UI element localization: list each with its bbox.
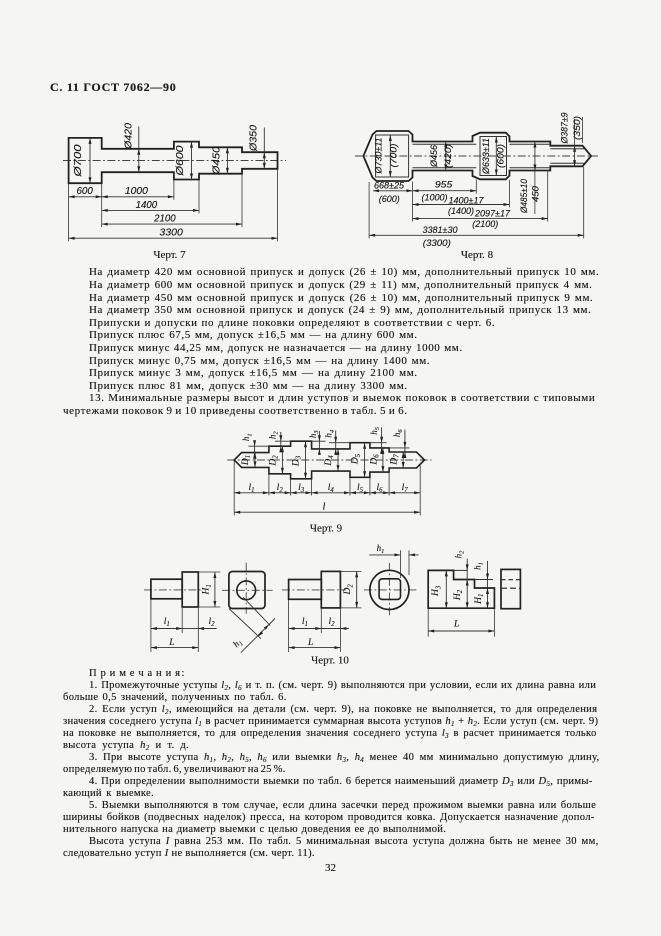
svg-text:3300: 3300 bbox=[159, 228, 183, 239]
svg-text:l2: l2 bbox=[328, 617, 335, 628]
svg-text:Ø350: Ø350 bbox=[249, 125, 260, 153]
svg-text:h5: h5 bbox=[369, 426, 381, 435]
svg-text:D5: D5 bbox=[351, 453, 362, 465]
svg-text:Ø387±9: Ø387±9 bbox=[560, 113, 570, 145]
svg-text:Черт. 7: Черт. 7 bbox=[153, 249, 186, 261]
svg-text:Ø456: Ø456 bbox=[429, 145, 439, 168]
svg-text:h4: h4 bbox=[324, 429, 336, 438]
svg-text:D7: D7 bbox=[390, 454, 401, 466]
svg-text:L: L bbox=[307, 638, 313, 648]
svg-text:1000: 1000 bbox=[125, 186, 148, 197]
svg-text:Ø450: Ø450 bbox=[212, 146, 223, 176]
svg-text:D1: D1 bbox=[241, 455, 252, 466]
svg-text:l: l bbox=[323, 501, 326, 512]
svg-text:Черт. 10: Черт. 10 bbox=[311, 655, 349, 667]
svg-text:h1: h1 bbox=[231, 637, 245, 651]
svg-text:(2100): (2100) bbox=[472, 219, 498, 229]
svg-text:(700): (700) bbox=[389, 144, 399, 168]
svg-text:(1400): (1400) bbox=[448, 206, 474, 216]
svg-text:l3: l3 bbox=[298, 483, 305, 494]
svg-text:3381±30: 3381±30 bbox=[423, 225, 458, 235]
svg-text:Черт. 9: Черт. 9 bbox=[310, 523, 343, 535]
svg-text:H3: H3 bbox=[431, 585, 442, 597]
svg-text:(350): (350) bbox=[572, 116, 582, 140]
svg-text:l1: l1 bbox=[302, 617, 308, 628]
svg-text:h2: h2 bbox=[267, 431, 279, 440]
svg-text:h6: h6 bbox=[392, 429, 404, 438]
svg-text:2097±17: 2097±17 bbox=[474, 209, 511, 219]
svg-text:l6: l6 bbox=[376, 483, 383, 494]
svg-text:2100: 2100 bbox=[153, 214, 176, 225]
svg-text:955: 955 bbox=[435, 180, 454, 190]
svg-text:(600): (600) bbox=[379, 194, 400, 204]
svg-text:h1: h1 bbox=[241, 433, 253, 441]
svg-text:Черт. 8: Черт. 8 bbox=[461, 249, 494, 261]
svg-text:l1: l1 bbox=[164, 617, 170, 628]
svg-text:H1: H1 bbox=[474, 594, 485, 605]
svg-text:D2: D2 bbox=[268, 455, 279, 467]
svg-text:450: 450 bbox=[530, 186, 540, 202]
svg-text:h1: h1 bbox=[472, 562, 484, 570]
svg-text:H2: H2 bbox=[453, 589, 464, 601]
svg-text:Ø730±11: Ø730±11 bbox=[374, 138, 384, 175]
svg-text:D4: D4 bbox=[324, 455, 335, 467]
svg-text:H1: H1 bbox=[202, 584, 213, 595]
svg-text:D3: D3 bbox=[292, 455, 303, 467]
svg-text:Ø633±11: Ø633±11 bbox=[481, 138, 491, 175]
svg-text:D6: D6 bbox=[369, 454, 380, 466]
svg-text:(1000): (1000) bbox=[421, 193, 447, 203]
svg-text:Ø485±10: Ø485±10 bbox=[519, 179, 529, 214]
svg-text:Ø600: Ø600 bbox=[175, 145, 186, 177]
svg-text:1400: 1400 bbox=[136, 200, 158, 211]
svg-text:l2: l2 bbox=[208, 617, 215, 628]
svg-text:1400±17: 1400±17 bbox=[449, 196, 485, 206]
svg-text:h2: h2 bbox=[453, 550, 465, 559]
svg-text:h1: h1 bbox=[377, 543, 385, 555]
svg-text:l7: l7 bbox=[402, 483, 409, 494]
svg-text:l2: l2 bbox=[277, 483, 284, 494]
svg-text:(420): (420) bbox=[443, 144, 453, 168]
svg-text:l4: l4 bbox=[328, 483, 335, 494]
svg-text:600: 600 bbox=[76, 186, 93, 197]
svg-text:l5: l5 bbox=[357, 483, 364, 494]
svg-text:D2: D2 bbox=[343, 584, 354, 596]
svg-text:668±25: 668±25 bbox=[374, 180, 405, 190]
svg-text:Ø420: Ø420 bbox=[124, 123, 135, 151]
svg-text:L: L bbox=[453, 620, 459, 630]
svg-text:l1: l1 bbox=[248, 483, 254, 494]
svg-text:(600): (600) bbox=[496, 144, 506, 168]
svg-text:h3: h3 bbox=[308, 430, 320, 439]
svg-text:(3300): (3300) bbox=[423, 238, 451, 248]
svg-text:L: L bbox=[168, 638, 174, 648]
svg-text:Ø700: Ø700 bbox=[73, 144, 84, 178]
